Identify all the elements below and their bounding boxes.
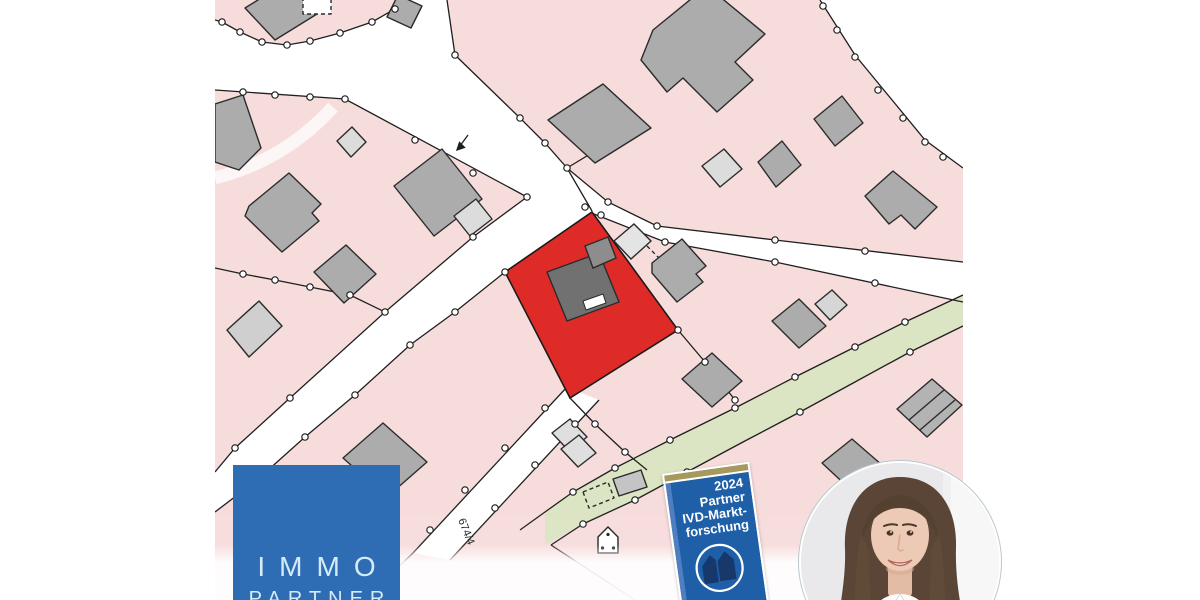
listing-image: 674/4 IMMO PARTNER 2024 Partner IVD-Mark… — [0, 0, 1200, 600]
houses-icon — [674, 535, 765, 600]
brand-logo-line2: PARTNER — [242, 589, 392, 600]
brand-logo: IMMO PARTNER — [233, 465, 400, 600]
brand-logo-line1: IMMO — [243, 553, 389, 581]
